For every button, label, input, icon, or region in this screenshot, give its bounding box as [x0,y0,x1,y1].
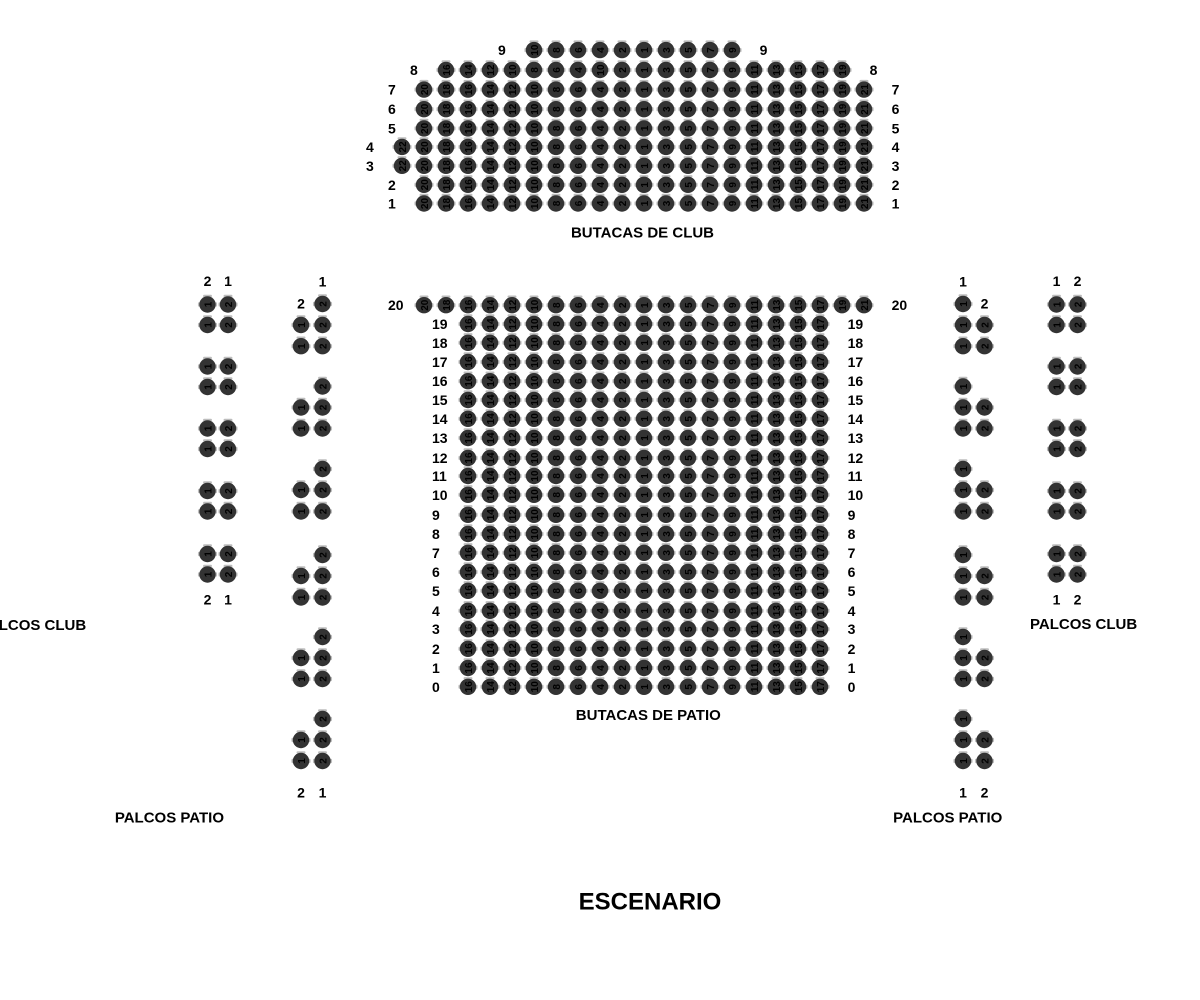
svg-text:11: 11 [750,643,761,654]
svg-text:8: 8 [552,455,563,461]
svg-text:1: 1 [959,785,967,801]
svg-text:15: 15 [794,547,805,559]
svg-text:14: 14 [486,356,497,368]
svg-text:13: 13 [772,198,783,210]
svg-text:1: 1 [959,404,970,410]
svg-text:14: 14 [486,318,497,330]
svg-text:2: 2 [318,487,329,493]
svg-text:3: 3 [432,621,440,637]
svg-text:11: 11 [750,605,761,616]
svg-text:17: 17 [816,452,827,464]
svg-text:PALCOS CLUB: PALCOS CLUB [0,617,86,634]
svg-text:5: 5 [892,120,900,136]
svg-text:2: 2 [224,446,235,452]
svg-text:16: 16 [464,337,475,349]
svg-text:1: 1 [640,492,651,498]
svg-text:3: 3 [662,378,673,384]
svg-text:1: 1 [640,665,651,671]
svg-text:2: 2 [618,569,629,575]
svg-text:1: 1 [959,274,967,290]
svg-text:5: 5 [684,144,695,150]
svg-text:18: 18 [442,179,453,191]
svg-text:19: 19 [838,64,849,76]
svg-text:11: 11 [750,160,761,171]
svg-text:1: 1 [1052,508,1063,514]
svg-text:1: 1 [959,301,970,307]
svg-text:14: 14 [486,566,497,578]
svg-text:7: 7 [706,435,717,441]
svg-text:2: 2 [618,182,629,188]
svg-text:3: 3 [662,321,673,327]
svg-text:6: 6 [574,665,585,671]
svg-text:14: 14 [486,413,497,425]
svg-text:11: 11 [750,432,761,443]
svg-text:15: 15 [794,681,805,693]
svg-text:2: 2 [224,425,235,431]
svg-text:2: 2 [618,435,629,441]
svg-text:17: 17 [816,64,827,76]
svg-text:2: 2 [432,641,440,657]
svg-text:14: 14 [486,547,497,559]
svg-text:9: 9 [728,302,739,308]
svg-text:1: 1 [297,737,308,743]
svg-text:1: 1 [640,182,651,188]
svg-text:4: 4 [596,626,607,632]
svg-text:15: 15 [848,392,864,408]
svg-text:2: 2 [980,594,991,600]
svg-text:1: 1 [203,446,214,452]
svg-text:17: 17 [816,470,827,482]
svg-text:16: 16 [464,103,475,115]
svg-text:16: 16 [464,179,475,191]
svg-text:1: 1 [959,466,970,472]
svg-text:1: 1 [640,86,651,92]
svg-text:4: 4 [596,588,607,594]
svg-text:13: 13 [772,413,783,425]
svg-text:2: 2 [1073,301,1084,307]
svg-text:2: 2 [618,550,629,556]
svg-text:2: 2 [1073,571,1084,577]
svg-text:1: 1 [1052,488,1063,494]
svg-text:17: 17 [816,179,827,191]
svg-text:1: 1 [640,684,651,690]
svg-text:21: 21 [860,198,871,210]
svg-text:2: 2 [618,492,629,498]
svg-text:13: 13 [772,452,783,464]
svg-text:21: 21 [860,84,871,96]
svg-text:4: 4 [596,340,607,346]
svg-text:15: 15 [794,528,805,540]
svg-text:5: 5 [684,455,695,461]
svg-text:1: 1 [959,573,970,579]
svg-text:14: 14 [486,509,497,521]
svg-text:1: 1 [640,47,651,53]
svg-text:14: 14 [486,141,497,153]
svg-text:6: 6 [574,531,585,537]
svg-text:16: 16 [464,413,475,425]
svg-text:1: 1 [432,660,440,676]
svg-text:16: 16 [464,623,475,635]
svg-text:1: 1 [640,569,651,575]
svg-text:2: 2 [618,340,629,346]
svg-text:7: 7 [892,82,900,98]
svg-text:8: 8 [552,435,563,441]
svg-text:11: 11 [750,318,761,329]
svg-text:3: 3 [662,67,673,73]
svg-text:1: 1 [640,67,651,73]
svg-text:1: 1 [319,274,327,290]
svg-text:9: 9 [728,492,739,498]
svg-text:11: 11 [750,123,761,134]
svg-text:6: 6 [574,106,585,112]
svg-text:12: 12 [848,450,864,466]
svg-text:BUTACAS DE CLUB: BUTACAS DE CLUB [571,225,714,242]
svg-text:4: 4 [596,378,607,384]
svg-text:11: 11 [848,468,863,484]
svg-text:14: 14 [486,299,497,311]
svg-text:21: 21 [860,103,871,115]
svg-text:3: 3 [662,473,673,479]
svg-text:13: 13 [772,160,783,172]
svg-text:10: 10 [530,84,541,96]
svg-text:1: 1 [297,594,308,600]
svg-text:17: 17 [816,566,827,578]
svg-text:8: 8 [552,512,563,518]
svg-text:1: 1 [1052,363,1063,369]
svg-text:8: 8 [552,665,563,671]
svg-text:15: 15 [432,392,448,408]
svg-text:3: 3 [848,621,856,637]
svg-text:17: 17 [816,103,827,115]
svg-text:9: 9 [728,531,739,537]
svg-text:5: 5 [684,550,695,556]
svg-text:10: 10 [530,179,541,191]
svg-text:11: 11 [750,84,761,95]
svg-text:2: 2 [318,383,329,389]
svg-text:2: 2 [224,571,235,577]
svg-text:4: 4 [892,139,900,155]
svg-text:18: 18 [442,122,453,134]
svg-text:10: 10 [530,299,541,311]
svg-text:15: 15 [794,432,805,444]
svg-text:1: 1 [959,716,970,722]
svg-text:19: 19 [838,141,849,153]
svg-text:10: 10 [530,509,541,521]
svg-text:6: 6 [574,47,585,53]
svg-text:2: 2 [980,573,991,579]
svg-text:0: 0 [848,679,856,695]
svg-text:20: 20 [892,297,908,313]
svg-text:9: 9 [728,144,739,150]
svg-text:13: 13 [772,299,783,311]
svg-text:7: 7 [706,473,717,479]
svg-text:10: 10 [530,198,541,210]
svg-text:7: 7 [706,144,717,150]
svg-text:10: 10 [530,394,541,406]
svg-text:15: 15 [794,413,805,425]
svg-text:2: 2 [1073,425,1084,431]
svg-text:17: 17 [432,354,448,370]
svg-text:10: 10 [432,487,448,503]
svg-text:12: 12 [508,470,519,482]
svg-text:1: 1 [1053,592,1061,608]
svg-text:3: 3 [662,435,673,441]
svg-text:7: 7 [848,545,856,561]
svg-text:2: 2 [981,785,989,801]
svg-text:11: 11 [750,198,761,209]
svg-text:15: 15 [794,452,805,464]
svg-text:8: 8 [530,67,541,73]
svg-text:1: 1 [959,383,970,389]
svg-text:12: 12 [508,662,519,674]
svg-text:3: 3 [662,588,673,594]
svg-text:6: 6 [574,182,585,188]
svg-text:3: 3 [662,163,673,169]
svg-text:13: 13 [772,356,783,368]
svg-text:2: 2 [618,200,629,206]
svg-text:1: 1 [959,343,970,349]
svg-text:2: 2 [980,343,991,349]
svg-text:17: 17 [816,122,827,134]
svg-text:9: 9 [728,550,739,556]
svg-text:10: 10 [530,489,541,501]
svg-text:16: 16 [464,299,475,311]
svg-text:21: 21 [860,141,871,153]
svg-text:17: 17 [816,394,827,406]
svg-text:12: 12 [508,198,519,210]
svg-text:3: 3 [662,144,673,150]
svg-text:6: 6 [574,416,585,422]
svg-text:8: 8 [552,646,563,652]
svg-text:2: 2 [318,758,329,764]
svg-text:5: 5 [684,321,695,327]
svg-text:3: 3 [662,550,673,556]
svg-text:9: 9 [728,588,739,594]
svg-text:2: 2 [1073,446,1084,452]
svg-text:15: 15 [794,141,805,153]
svg-text:1: 1 [640,106,651,112]
svg-text:7: 7 [706,47,717,53]
svg-text:4: 4 [848,603,856,619]
svg-text:20: 20 [420,141,431,153]
svg-text:12: 12 [508,394,519,406]
svg-text:14: 14 [486,489,497,501]
svg-text:17: 17 [848,354,864,370]
svg-text:9: 9 [728,163,739,169]
svg-text:20: 20 [420,84,431,96]
svg-text:9: 9 [728,455,739,461]
svg-text:2: 2 [980,508,991,514]
svg-text:11: 11 [750,585,761,596]
svg-text:2: 2 [980,737,991,743]
svg-text:10: 10 [530,470,541,482]
svg-text:4: 4 [596,512,607,518]
svg-text:1: 1 [203,508,214,514]
svg-text:10: 10 [596,64,607,76]
svg-text:16: 16 [464,375,475,387]
svg-text:1: 1 [640,163,651,169]
svg-text:18: 18 [432,335,448,351]
svg-text:17: 17 [816,198,827,210]
svg-text:2: 2 [224,508,235,514]
svg-text:19: 19 [838,160,849,172]
svg-text:2: 2 [980,758,991,764]
svg-text:9: 9 [848,507,856,523]
svg-text:11: 11 [432,468,447,484]
svg-text:22: 22 [398,160,409,172]
svg-text:14: 14 [486,470,497,482]
svg-text:1: 1 [640,302,651,308]
svg-text:11: 11 [750,64,761,75]
svg-text:7: 7 [706,182,717,188]
svg-text:11: 11 [750,299,761,310]
svg-text:10: 10 [530,605,541,617]
svg-text:1: 1 [640,416,651,422]
svg-text:15: 15 [794,179,805,191]
svg-text:2: 2 [318,425,329,431]
svg-text:7: 7 [388,82,396,98]
svg-text:5: 5 [684,67,695,73]
svg-text:4: 4 [596,569,607,575]
svg-text:1: 1 [959,655,970,661]
svg-text:1: 1 [297,322,308,328]
svg-text:7: 7 [706,397,717,403]
svg-text:8: 8 [432,526,440,542]
svg-text:17: 17 [816,643,827,655]
svg-text:5: 5 [684,302,695,308]
svg-text:5: 5 [684,608,695,614]
svg-text:12: 12 [508,566,519,578]
svg-text:16: 16 [464,318,475,330]
svg-text:6: 6 [574,608,585,614]
svg-text:2: 2 [618,125,629,131]
svg-text:1: 1 [319,785,327,801]
svg-text:17: 17 [816,623,827,635]
svg-text:2: 2 [318,404,329,410]
svg-text:16: 16 [464,122,475,134]
svg-text:3: 3 [662,608,673,614]
svg-text:6: 6 [574,435,585,441]
svg-text:4: 4 [596,455,607,461]
svg-text:6: 6 [574,550,585,556]
svg-text:16: 16 [464,489,475,501]
svg-text:0: 0 [432,679,440,695]
svg-text:9: 9 [728,569,739,575]
svg-text:11: 11 [750,337,761,348]
svg-text:13: 13 [772,509,783,521]
svg-text:7: 7 [706,321,717,327]
svg-text:2: 2 [618,626,629,632]
svg-text:2: 2 [892,177,900,193]
svg-text:16: 16 [848,373,864,389]
svg-text:2: 2 [618,531,629,537]
svg-text:2: 2 [318,594,329,600]
svg-text:15: 15 [794,318,805,330]
svg-text:11: 11 [750,179,761,190]
svg-text:7: 7 [706,416,717,422]
svg-text:2: 2 [318,634,329,640]
svg-text:12: 12 [508,452,519,464]
svg-text:9: 9 [432,507,440,523]
svg-text:2: 2 [318,508,329,514]
svg-text:19: 19 [838,122,849,134]
svg-text:1: 1 [297,487,308,493]
svg-text:8: 8 [552,550,563,556]
svg-text:10: 10 [530,662,541,674]
svg-text:14: 14 [486,662,497,674]
svg-text:8: 8 [552,302,563,308]
svg-text:5: 5 [684,397,695,403]
svg-text:2: 2 [980,404,991,410]
svg-text:4: 4 [596,665,607,671]
svg-text:5: 5 [684,200,695,206]
svg-text:19: 19 [838,84,849,96]
svg-text:9: 9 [728,340,739,346]
svg-text:9: 9 [728,646,739,652]
svg-text:4: 4 [596,47,607,53]
svg-text:3: 3 [662,646,673,652]
svg-text:14: 14 [486,122,497,134]
svg-text:17: 17 [816,318,827,330]
svg-text:9: 9 [760,42,768,58]
svg-text:1: 1 [297,508,308,514]
svg-text:11: 11 [750,452,761,463]
svg-text:10: 10 [530,375,541,387]
svg-text:1: 1 [640,473,651,479]
svg-text:11: 11 [750,413,761,424]
svg-text:12: 12 [508,84,519,96]
svg-text:5: 5 [684,473,695,479]
svg-text:5: 5 [684,665,695,671]
svg-text:17: 17 [816,299,827,311]
svg-text:1: 1 [297,573,308,579]
svg-text:14: 14 [486,394,497,406]
svg-text:7: 7 [706,302,717,308]
svg-text:5: 5 [684,646,695,652]
svg-text:9: 9 [498,42,506,58]
svg-text:9: 9 [728,67,739,73]
svg-text:5: 5 [684,163,695,169]
svg-text:2: 2 [1073,551,1084,557]
svg-text:12: 12 [508,375,519,387]
svg-text:4: 4 [432,603,440,619]
svg-text:2: 2 [297,785,305,801]
svg-text:4: 4 [596,397,607,403]
svg-text:2: 2 [318,466,329,472]
svg-text:PALCOS PATIO: PALCOS PATIO [893,810,1003,827]
svg-text:17: 17 [816,375,827,387]
svg-text:13: 13 [772,84,783,96]
svg-text:3: 3 [662,626,673,632]
svg-text:3: 3 [662,684,673,690]
svg-text:15: 15 [794,356,805,368]
svg-text:4: 4 [596,302,607,308]
svg-text:6: 6 [574,588,585,594]
svg-text:1: 1 [297,343,308,349]
svg-text:3: 3 [892,158,900,174]
svg-text:12: 12 [508,160,519,172]
svg-text:2: 2 [224,363,235,369]
svg-text:7: 7 [706,665,717,671]
svg-text:6: 6 [574,512,585,518]
svg-text:1: 1 [848,660,856,676]
svg-text:7: 7 [706,512,717,518]
svg-text:13: 13 [772,566,783,578]
svg-text:1: 1 [1052,425,1063,431]
svg-text:19: 19 [838,299,849,311]
svg-text:2: 2 [618,588,629,594]
svg-text:15: 15 [794,122,805,134]
